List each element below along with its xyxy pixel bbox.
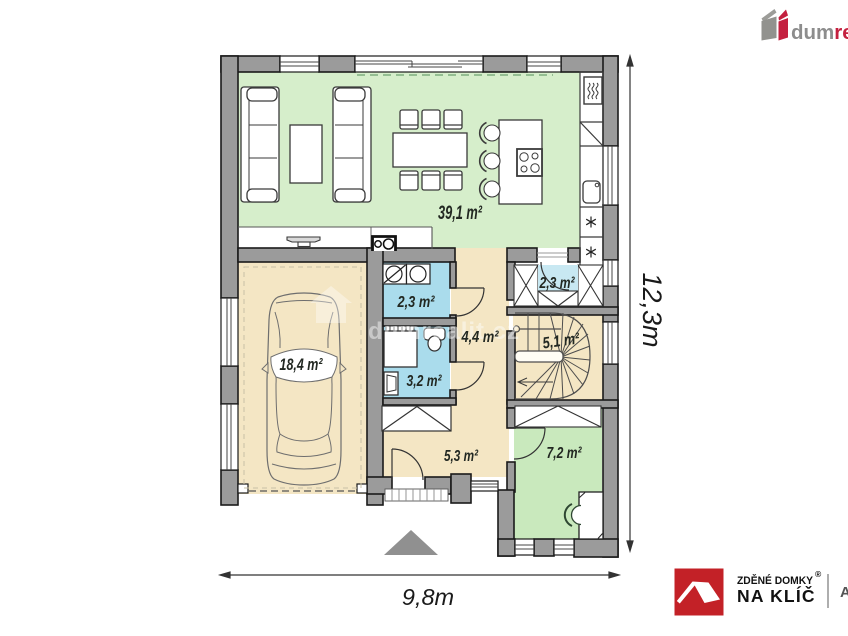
svg-text:NA KLÍČ: NA KLÍČ <box>737 585 816 606</box>
svg-text:2,3 m²: 2,3 m² <box>397 294 435 311</box>
svg-text:3,2 m²: 3,2 m² <box>407 373 443 390</box>
svg-text:®: ® <box>815 569 822 579</box>
svg-text:12,3m: 12,3m <box>637 272 667 347</box>
svg-text:4,4 m²: 4,4 m² <box>461 329 499 346</box>
svg-text:9,8m: 9,8m <box>402 584 454 610</box>
svg-text:dumre: dumre <box>791 21 848 44</box>
svg-text:18,4 m²: 18,4 m² <box>280 355 324 374</box>
svg-text:39,1 m²: 39,1 m² <box>438 203 482 224</box>
svg-text:2,3 m²: 2,3 m² <box>539 275 575 292</box>
svg-text:5,3 m²: 5,3 m² <box>444 448 478 465</box>
svg-text:7,2 m²: 7,2 m² <box>547 445 583 462</box>
svg-text:A: A <box>840 584 848 601</box>
